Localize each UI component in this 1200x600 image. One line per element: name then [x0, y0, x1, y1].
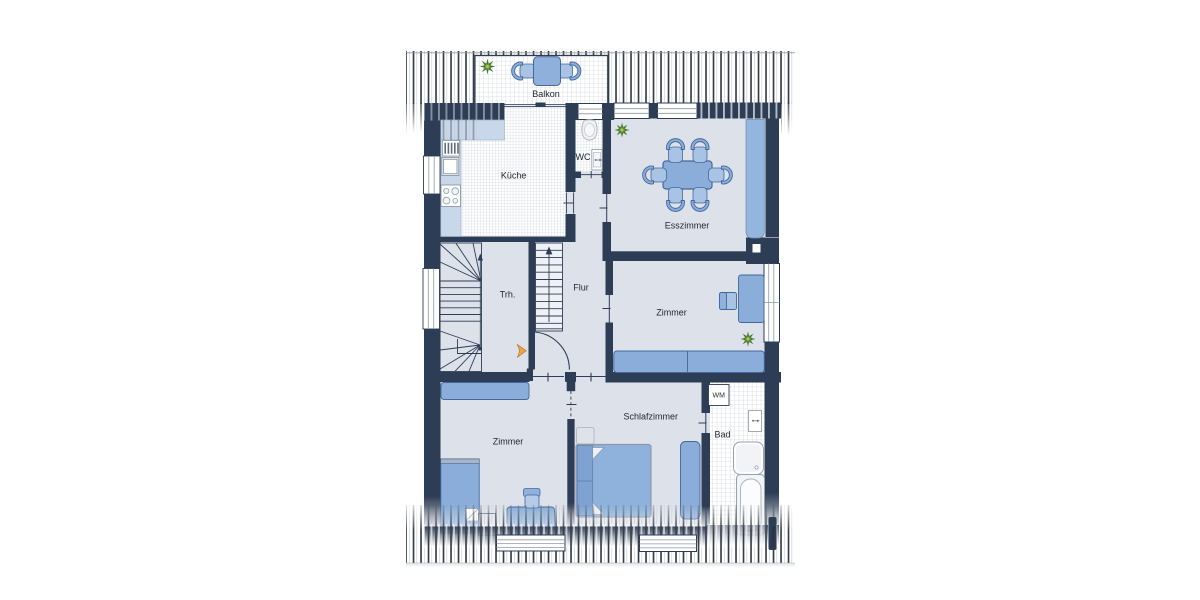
svg-text:Schlafzimmer: Schlafzimmer — [624, 412, 679, 422]
svg-text:WC: WC — [576, 152, 591, 162]
svg-text:Trh.: Trh. — [500, 290, 516, 300]
svg-text:Zeichnung: Zeichnung — [771, 526, 776, 548]
svg-text:Zimmer: Zimmer — [656, 307, 687, 317]
svg-text:Flur: Flur — [573, 283, 589, 293]
svg-text:Balkon: Balkon — [532, 89, 560, 99]
svg-text:Küche: Küche — [501, 170, 527, 180]
svg-text:Esszimmer: Esszimmer — [665, 220, 710, 230]
svg-text:Bad: Bad — [714, 430, 730, 440]
svg-text:WM: WM — [712, 392, 725, 399]
svg-text:Zimmer: Zimmer — [493, 436, 524, 446]
